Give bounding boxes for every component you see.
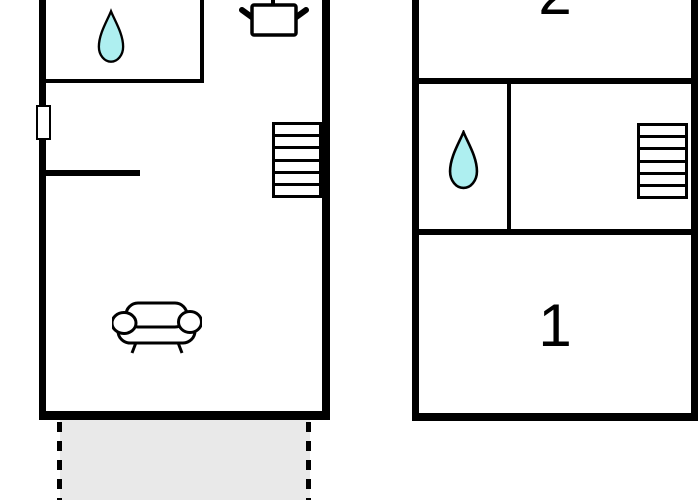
room-2-label: 2	[419, 0, 691, 24]
stair-tread	[640, 150, 685, 162]
stair-tread	[275, 137, 319, 149]
stair-tread	[275, 174, 319, 186]
landing-bottom-wall	[419, 229, 691, 235]
bathroom-divider-wall	[507, 84, 511, 229]
stair-tread	[640, 163, 685, 175]
terrace-dashed-border-left	[57, 422, 62, 500]
stair-tread	[640, 126, 685, 138]
water-drop-icon	[447, 130, 480, 190]
stair-tread	[640, 187, 685, 196]
water-drop-icon	[97, 8, 125, 65]
stairs-icon	[637, 123, 688, 199]
sofa-icon	[112, 300, 202, 354]
sofa-armrest-left	[112, 313, 136, 334]
stairs-icon	[272, 122, 322, 198]
stair-tread	[640, 138, 685, 150]
bathroom-wall-vertical	[200, 0, 204, 83]
stair-tread	[275, 149, 319, 161]
wall-bottom	[412, 413, 698, 421]
bathroom-wall-horizontal	[46, 79, 204, 83]
window-marker	[36, 105, 51, 140]
wall-right	[691, 0, 698, 421]
floorplan-canvas: 2 1	[0, 0, 698, 500]
room-1-label: 1	[419, 296, 691, 356]
stair-tread	[275, 162, 319, 174]
wall-right	[322, 0, 330, 420]
wall-bottom	[39, 411, 330, 420]
stair-tread	[275, 125, 319, 137]
wall-left	[39, 0, 46, 420]
room2-bottom-wall	[419, 78, 691, 84]
terrace-area	[60, 420, 310, 500]
wall-left	[412, 0, 419, 421]
interior-wall-stub	[46, 170, 140, 176]
stair-tread	[275, 186, 319, 195]
stair-tread	[640, 175, 685, 187]
water-drop-shape	[450, 132, 477, 188]
pot-body	[252, 5, 296, 35]
cooking-pot-icon	[239, 0, 309, 38]
terrace-dashed-border-right	[306, 422, 311, 500]
water-drop-shape	[99, 11, 123, 61]
sofa-armrest-right	[179, 312, 202, 333]
